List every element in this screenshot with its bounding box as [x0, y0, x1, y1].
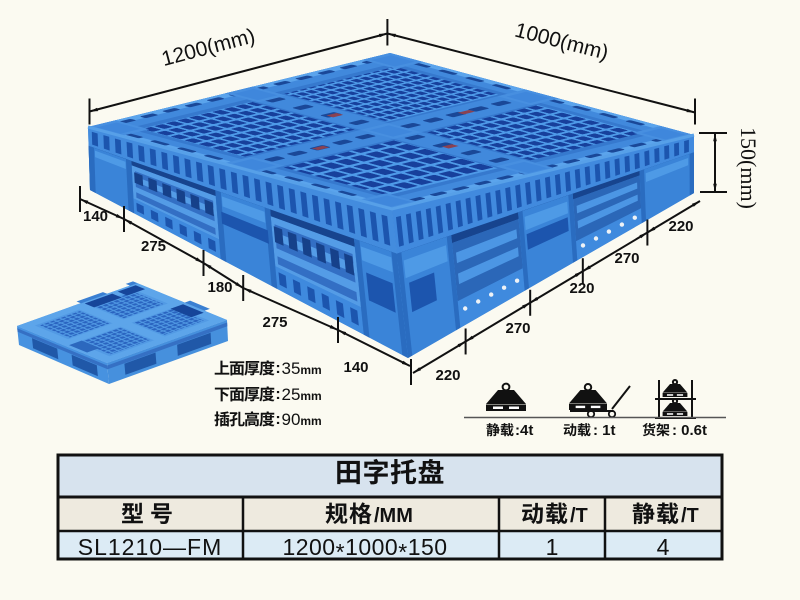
svg-text:SL1210—FM: SL1210—FM: [78, 534, 223, 560]
svg-text:1: 1: [546, 534, 559, 560]
svg-text:275: 275: [262, 314, 287, 331]
svg-text:90: 90: [282, 410, 301, 429]
svg-text::4t: :4t: [515, 422, 533, 439]
svg-text:270: 270: [505, 320, 530, 337]
svg-text:150(mm): 150(mm): [736, 127, 761, 209]
svg-text:/T: /T: [570, 505, 588, 527]
svg-text::: :: [275, 386, 280, 403]
svg-text:140: 140: [343, 359, 368, 376]
svg-text::: :: [275, 411, 280, 428]
svg-text::: :: [275, 360, 280, 377]
svg-text:4: 4: [657, 534, 670, 560]
svg-text:220: 220: [435, 367, 460, 384]
svg-text:220: 220: [569, 280, 594, 297]
svg-text:180: 180: [207, 279, 232, 296]
svg-text:mm: mm: [300, 414, 321, 428]
svg-text:25: 25: [282, 385, 301, 404]
svg-text:35: 35: [282, 359, 301, 378]
svg-text:mm: mm: [300, 389, 321, 403]
svg-text:mm: mm: [300, 363, 321, 377]
svg-text:: 0.6t: : 0.6t: [672, 422, 707, 439]
svg-text:220: 220: [668, 218, 693, 235]
svg-text:/MM: /MM: [374, 505, 413, 527]
svg-text:/T: /T: [681, 505, 699, 527]
svg-text:: 1t: : 1t: [593, 422, 616, 439]
svg-text:140: 140: [83, 208, 108, 225]
svg-text:270: 270: [614, 250, 639, 267]
svg-text:275: 275: [141, 238, 166, 255]
